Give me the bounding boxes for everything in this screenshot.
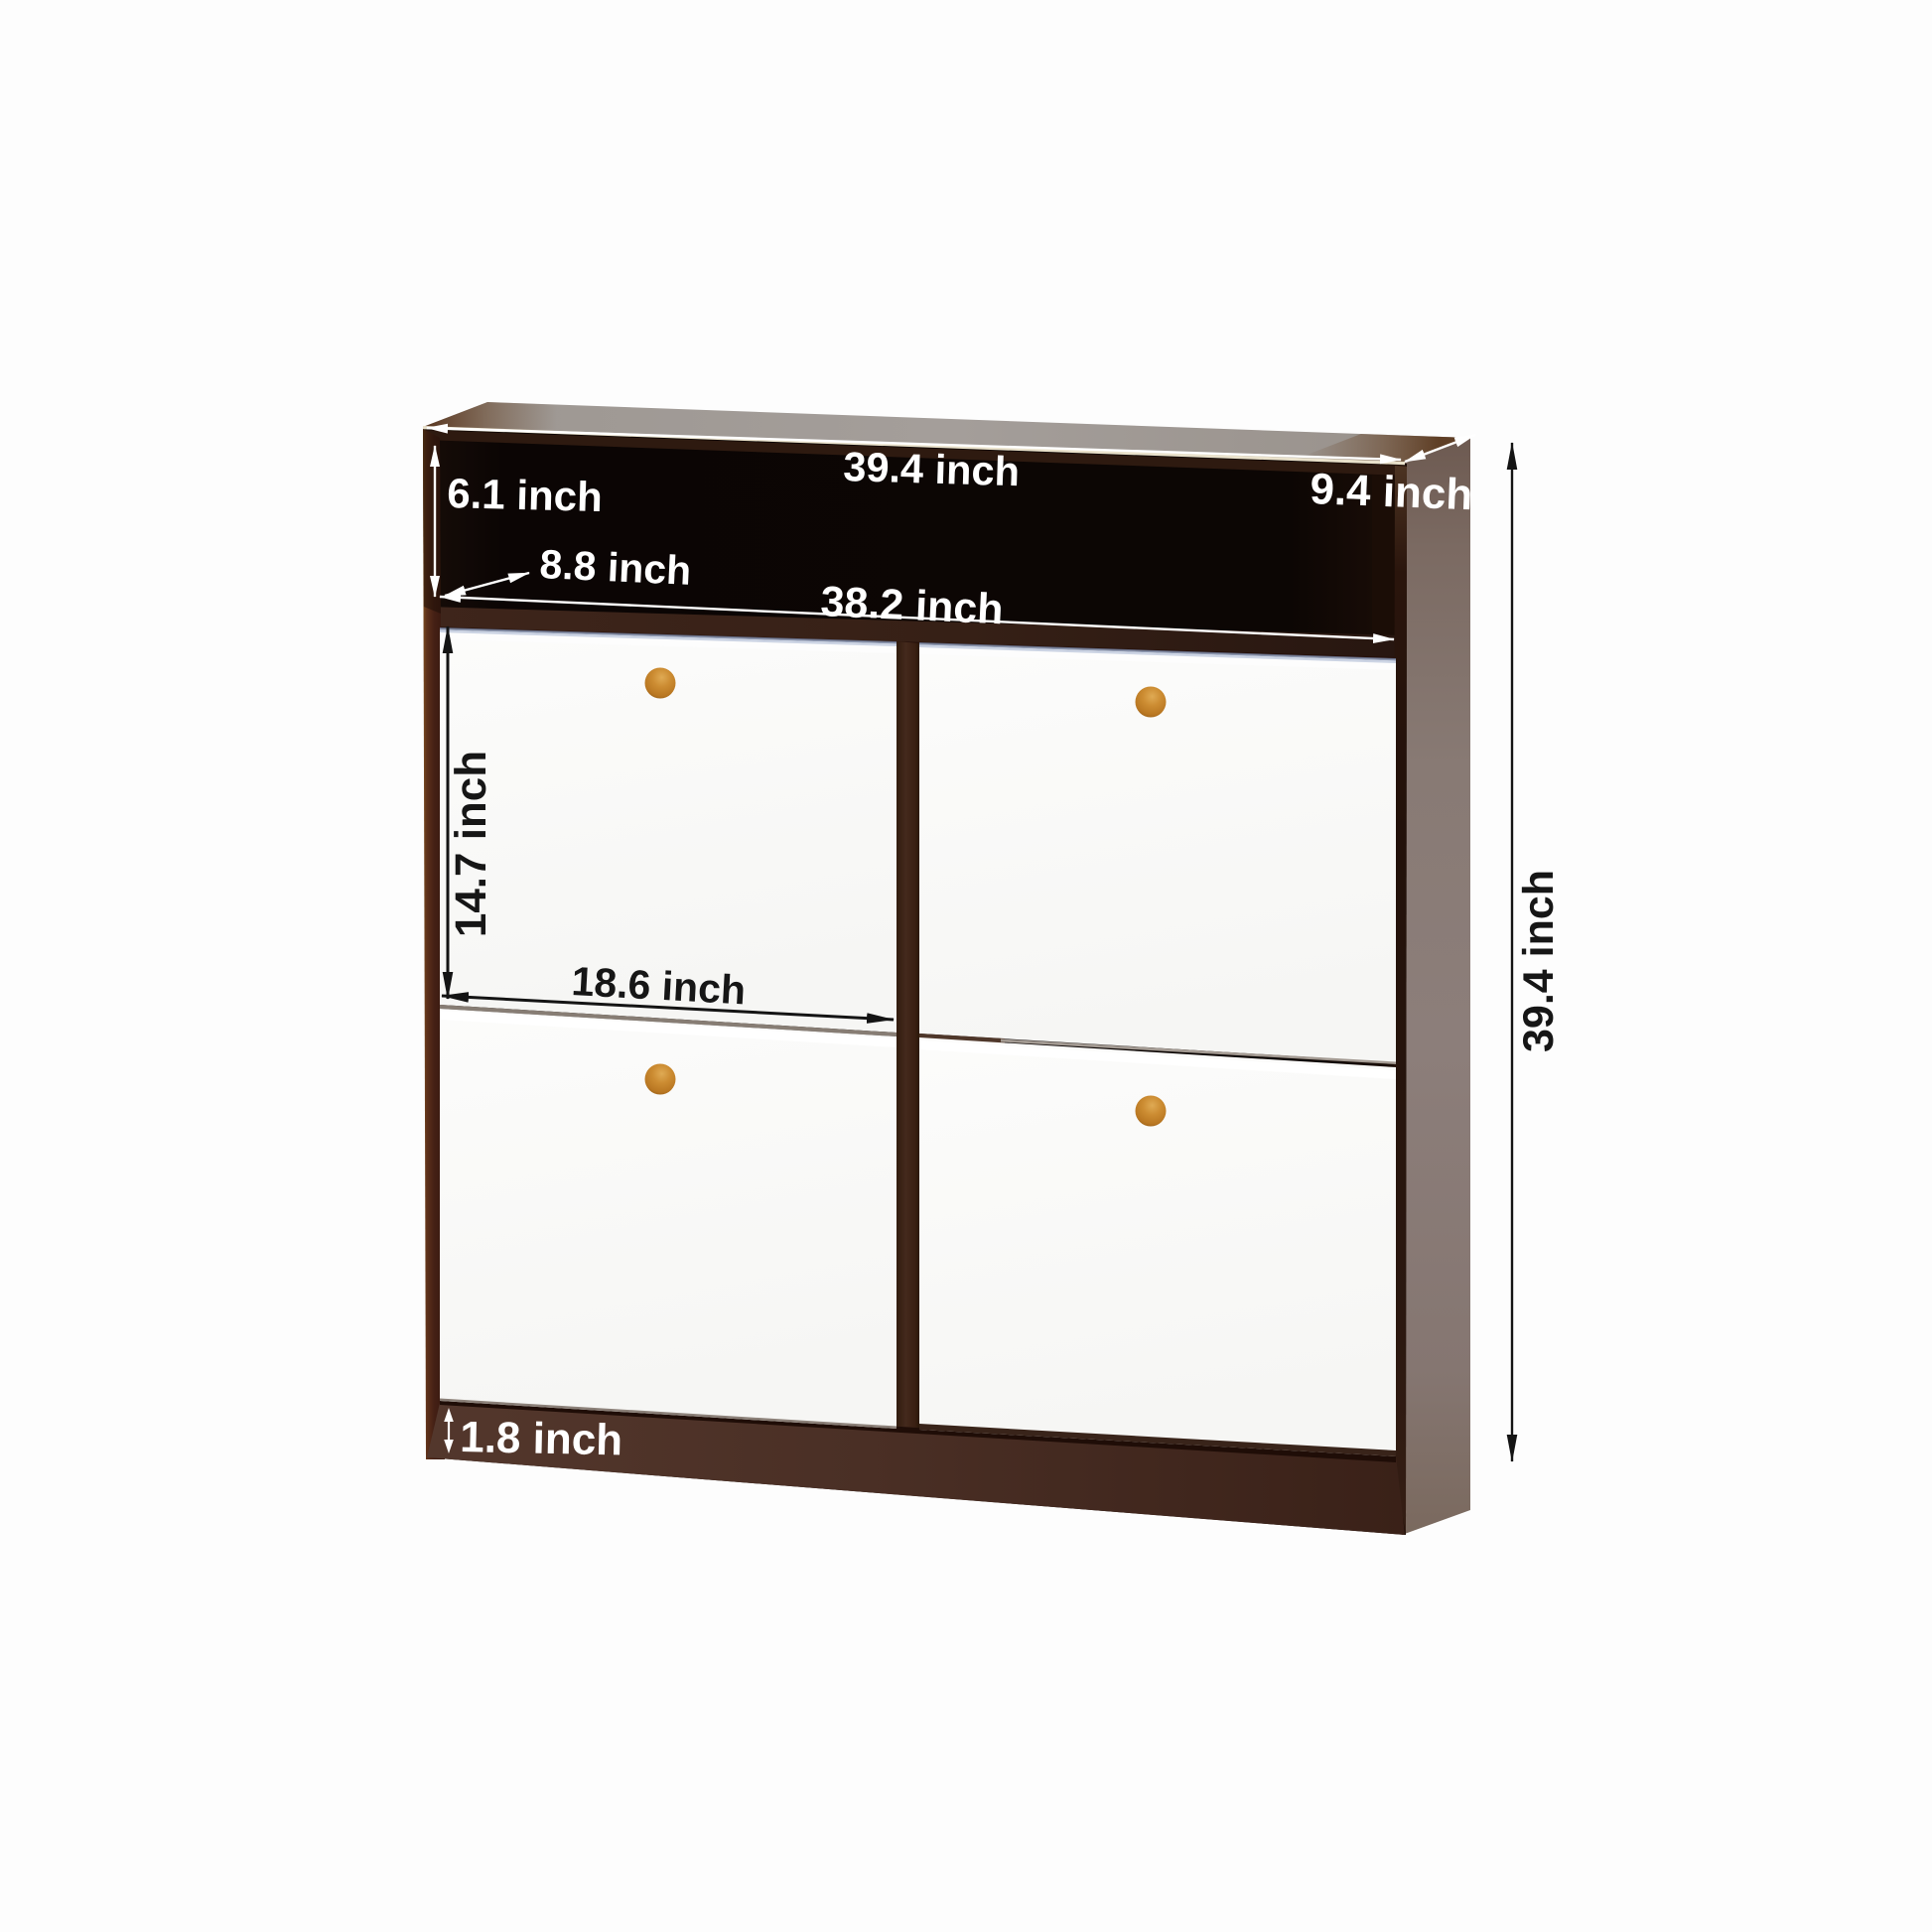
svg-text:9.4 inch: 9.4 inch (1310, 465, 1474, 519)
svg-text:39.4 inch: 39.4 inch (843, 443, 1021, 494)
svg-text:39.4 inch: 39.4 inch (1515, 870, 1563, 1052)
svg-text:14.7 inch: 14.7 inch (447, 751, 495, 937)
svg-text:8.8 inch: 8.8 inch (539, 541, 693, 594)
svg-text:6.1 inch: 6.1 inch (447, 470, 604, 520)
svg-text:38.2 inch: 38.2 inch (820, 578, 1005, 633)
svg-text:1.8 inch: 1.8 inch (460, 1413, 623, 1464)
svg-text:18.6 inch: 18.6 inch (571, 958, 748, 1013)
